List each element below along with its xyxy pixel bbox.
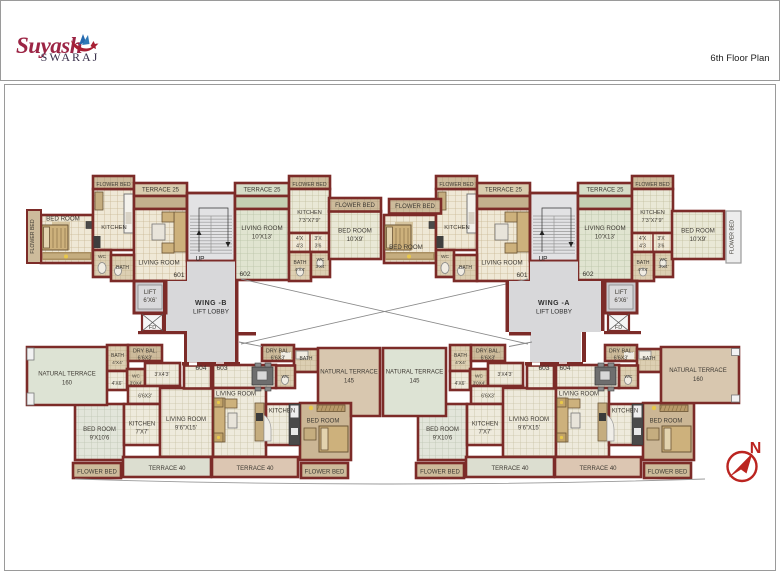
- svg-text:4'X: 4'X: [296, 236, 304, 242]
- svg-text:160: 160: [693, 377, 704, 383]
- svg-text:FLOWER BED: FLOWER BED: [635, 182, 670, 188]
- svg-text:LIVING ROOM: LIVING ROOM: [138, 260, 179, 267]
- svg-text:WC: WC: [317, 257, 326, 263]
- svg-text:BATH: BATH: [454, 353, 467, 359]
- svg-text:9’6"X15’: 9’6"X15’: [518, 426, 540, 432]
- svg-text:9'X10'6: 9'X10'6: [90, 436, 110, 442]
- svg-text:LIVING ROOM: LIVING ROOM: [241, 225, 282, 232]
- svg-text:WING -B: WING -B: [195, 300, 227, 307]
- svg-text:6’X6’: 6’X6’: [614, 298, 627, 304]
- svg-text:FLOWER BED: FLOWER BED: [730, 220, 736, 255]
- svg-text:KITCHEN: KITCHEN: [101, 225, 126, 231]
- svg-text:3'X4': 3'X4': [659, 264, 669, 269]
- svg-text:BATH: BATH: [111, 353, 124, 359]
- svg-text:BATH: BATH: [643, 356, 656, 362]
- svg-text:TERRACE 25: TERRACE 25: [142, 188, 180, 194]
- svg-text:N: N: [750, 440, 762, 457]
- svg-text:4'3: 4'3: [296, 244, 303, 250]
- svg-text:WC: WC: [98, 254, 107, 260]
- svg-text:BED ROOM: BED ROOM: [46, 216, 80, 223]
- svg-text:BATH: BATH: [294, 260, 307, 266]
- svg-text:KITCHEN: KITCHEN: [444, 225, 469, 231]
- svg-text:FLOWER BED: FLOWER BED: [305, 470, 345, 476]
- svg-text:DRY BAL.: DRY BAL.: [476, 349, 500, 355]
- svg-text:603: 603: [216, 365, 227, 372]
- svg-text:FLOWER BED: FLOWER BED: [395, 204, 435, 210]
- svg-text:4'X6': 4'X6': [112, 381, 123, 387]
- svg-text:3'6: 3'6: [658, 244, 665, 250]
- svg-text:WC: WC: [475, 374, 484, 380]
- svg-text:DRY BAL.: DRY BAL.: [133, 349, 157, 355]
- svg-text:3'X: 3'X: [314, 236, 322, 242]
- svg-text:10'X13': 10'X13': [252, 234, 272, 241]
- svg-text:LIVING ROOM: LIVING ROOM: [216, 392, 256, 398]
- svg-text:KITCHEN: KITCHEN: [612, 409, 638, 415]
- svg-text:FLOWER BED: FLOWER BED: [335, 203, 375, 209]
- svg-text:6'6X3': 6'6X3': [138, 394, 152, 400]
- svg-text:BED ROOM: BED ROOM: [426, 427, 459, 433]
- svg-text:SWARAJ: SWARAJ: [41, 50, 100, 64]
- svg-text:UP: UP: [538, 256, 547, 263]
- svg-text:LIFT: LIFT: [144, 290, 157, 296]
- svg-text:LIVING ROOM: LIVING ROOM: [481, 260, 522, 267]
- svg-text:160: 160: [62, 381, 73, 387]
- svg-text:601: 601: [516, 272, 527, 279]
- svg-text:3'X4': 3'X4': [316, 264, 326, 269]
- svg-text:NATURAL TERRACE: NATURAL TERRACE: [386, 370, 444, 376]
- svg-text:4'X6': 4'X6': [455, 381, 466, 387]
- svg-text:WC: WC: [282, 374, 291, 380]
- svg-text:3’X4’3’: 3’X4’3’: [497, 372, 512, 378]
- svg-text:TERRACE 40: TERRACE 40: [148, 466, 186, 472]
- svg-text:TERRACE 40: TERRACE 40: [579, 466, 617, 472]
- svg-text:145: 145: [409, 379, 420, 385]
- svg-text:LIFT: LIFT: [615, 290, 628, 296]
- svg-text:KITCHEN: KITCHEN: [129, 422, 155, 428]
- svg-text:FLOWER BED: FLOWER BED: [292, 182, 327, 188]
- svg-text:6'6X3': 6'6X3': [271, 356, 286, 362]
- svg-text:LIVING ROOM: LIVING ROOM: [509, 417, 549, 423]
- svg-text:BED ROOM: BED ROOM: [389, 244, 423, 251]
- svg-text:3'0X4': 3'0X4': [130, 381, 143, 386]
- svg-text:602: 602: [582, 271, 593, 278]
- svg-text:4'X: 4'X: [639, 236, 647, 242]
- svg-text:TERRACE 25: TERRACE 25: [485, 188, 523, 194]
- svg-text:WING -A: WING -A: [538, 300, 570, 307]
- svg-text:145: 145: [344, 379, 355, 385]
- svg-text:LIVING ROOM: LIVING ROOM: [584, 225, 625, 232]
- svg-text:601: 601: [173, 272, 184, 279]
- svg-text:BED ROOM: BED ROOM: [338, 228, 372, 235]
- svg-text:3'6: 3'6: [315, 244, 322, 250]
- svg-text:FD: FD: [615, 325, 622, 331]
- svg-text:7'X7': 7'X7': [136, 430, 149, 436]
- svg-text:LIFT LOBBY: LIFT LOBBY: [193, 309, 230, 316]
- svg-text:KITCHEN: KITCHEN: [297, 210, 322, 216]
- svg-text:FLOWER BED: FLOWER BED: [420, 470, 460, 476]
- svg-text:WC: WC: [441, 254, 450, 260]
- svg-text:6'6X3': 6'6X3': [138, 356, 153, 362]
- svg-text:FLOWER BED: FLOWER BED: [648, 470, 688, 476]
- svg-text:10'X13': 10'X13': [595, 234, 615, 241]
- svg-text:BED ROOM: BED ROOM: [83, 427, 116, 433]
- svg-text:4’X4’: 4’X4’: [638, 267, 649, 273]
- svg-text:BED ROOM: BED ROOM: [650, 419, 683, 425]
- svg-text:3’X4’3’: 3’X4’3’: [154, 372, 169, 378]
- svg-text:LIFT LOBBY: LIFT LOBBY: [536, 309, 573, 316]
- svg-text:LIVING ROOM: LIVING ROOM: [166, 417, 206, 423]
- svg-text:KITCHEN: KITCHEN: [640, 210, 665, 216]
- svg-text:4’X4’: 4’X4’: [295, 267, 306, 273]
- svg-text:4'3: 4'3: [639, 244, 646, 250]
- svg-text:BATH: BATH: [637, 260, 650, 266]
- svg-text:BATH: BATH: [300, 356, 313, 362]
- svg-text:KITCHEN: KITCHEN: [269, 409, 295, 415]
- svg-text:6'6X3': 6'6X3': [481, 394, 495, 400]
- svg-text:4’X4’: 4’X4’: [112, 360, 123, 366]
- svg-text:604: 604: [559, 365, 570, 372]
- svg-text:KITCHEN: KITCHEN: [472, 422, 498, 428]
- svg-text:6’X6’: 6’X6’: [143, 298, 156, 304]
- svg-text:FLOWER BED: FLOWER BED: [439, 182, 474, 188]
- svg-text:WC: WC: [660, 257, 669, 263]
- svg-text:NATURAL TERRACE: NATURAL TERRACE: [320, 370, 378, 376]
- svg-text:TERRACE 25: TERRACE 25: [243, 188, 281, 194]
- svg-text:6'6X3': 6'6X3': [481, 356, 496, 362]
- svg-text:BATH: BATH: [116, 265, 129, 271]
- svg-text:DRY BAL.: DRY BAL.: [609, 349, 633, 355]
- svg-text:TERRACE 25: TERRACE 25: [586, 188, 624, 194]
- svg-text:7’3"X7’9": 7’3"X7’9": [642, 218, 664, 224]
- svg-text:3'0X4': 3'0X4': [473, 381, 486, 386]
- svg-text:BED ROOM: BED ROOM: [681, 228, 715, 235]
- svg-text:BED ROOM: BED ROOM: [307, 419, 340, 425]
- svg-text:10'X9': 10'X9': [690, 236, 707, 243]
- svg-text:10'X9': 10'X9': [347, 236, 364, 243]
- svg-text:9'X10'6: 9'X10'6: [433, 436, 453, 442]
- svg-text:WC: WC: [625, 374, 634, 380]
- svg-text:FLOWER BED: FLOWER BED: [77, 470, 117, 476]
- svg-text:TERRACE 40: TERRACE 40: [236, 466, 274, 472]
- svg-text:4’X4’: 4’X4’: [455, 360, 466, 366]
- svg-text:NATURAL TERRACE: NATURAL TERRACE: [38, 372, 96, 378]
- svg-text:NATURAL TERRACE: NATURAL TERRACE: [669, 368, 727, 374]
- svg-text:FLOWER BED: FLOWER BED: [30, 219, 36, 254]
- svg-text:7'X7': 7'X7': [479, 430, 492, 436]
- svg-text:6'6X3': 6'6X3': [614, 356, 629, 362]
- svg-text:9’6"X15’: 9’6"X15’: [175, 426, 197, 432]
- svg-text:7’3"X7’9": 7’3"X7’9": [299, 218, 321, 224]
- svg-text:604: 604: [195, 365, 206, 372]
- svg-text:BATH: BATH: [459, 265, 472, 271]
- svg-text:UP: UP: [195, 256, 204, 263]
- svg-text:3'X: 3'X: [657, 236, 665, 242]
- svg-text:FD: FD: [149, 325, 156, 331]
- svg-text:DRY BAL.: DRY BAL.: [266, 349, 290, 355]
- svg-text:FLOWER BED: FLOWER BED: [96, 182, 131, 188]
- svg-text:LIVING ROOM: LIVING ROOM: [559, 392, 599, 398]
- svg-text:TERRACE 40: TERRACE 40: [491, 466, 529, 472]
- svg-text:6th Floor Plan: 6th Floor Plan: [710, 53, 769, 64]
- svg-text:602: 602: [239, 271, 250, 278]
- svg-text:603: 603: [538, 365, 549, 372]
- svg-text:WC: WC: [132, 374, 141, 380]
